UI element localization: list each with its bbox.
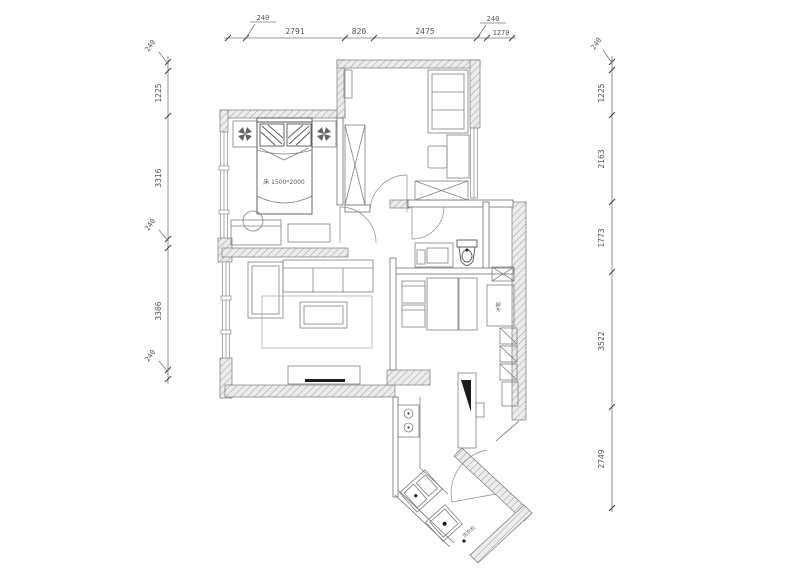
dim-label: 3316 — [154, 168, 163, 187]
partition-hall-stub — [345, 205, 370, 212]
wall-study-right — [470, 60, 480, 128]
background — [0, 0, 800, 575]
dim-label: 1773 — [597, 228, 606, 247]
dim-label: 2163 — [597, 149, 606, 168]
partition-kitchen-left — [393, 397, 398, 497]
wall-bedroom-bottom — [222, 248, 348, 257]
partition-dining — [390, 258, 396, 370]
dim-label: 1225 — [597, 83, 606, 102]
floor-plan-page: 240 2791 820 2475 240 1270 240 1225 3316… — [0, 0, 800, 575]
partition-bath-shaft — [483, 202, 489, 268]
dim-label: 1225 — [154, 83, 163, 102]
wall-kitchen-top — [387, 370, 430, 385]
dim-label: 1270 — [493, 29, 510, 37]
dim-label: 820 — [352, 27, 367, 36]
window-bedroom-left — [219, 132, 229, 238]
bed-size-label: 床 1500*2000 — [263, 178, 305, 186]
dim-label: 2475 — [415, 27, 434, 36]
wall-living-bottom — [225, 385, 395, 397]
wall-bedroom-top — [220, 110, 345, 118]
fridge-label: 冰箱 — [495, 302, 502, 312]
wall-study-top — [337, 60, 480, 68]
dim-label: 3522 — [597, 331, 606, 350]
partition-bedroom-hall — [337, 118, 343, 205]
dim-label: 2791 — [285, 27, 304, 36]
dim-label: 2749 — [597, 449, 606, 468]
tv — [305, 379, 345, 382]
floor-plan-svg: 240 2791 820 2475 240 1270 240 1225 3316… — [0, 0, 800, 575]
partition-bath-top — [408, 200, 513, 207]
window-study-right — [471, 128, 478, 198]
wall-left-upper — [220, 110, 228, 132]
dim-label: 240 — [487, 15, 500, 23]
window-living-left — [221, 262, 231, 358]
dim-label: 3306 — [154, 301, 163, 320]
dim-label: 240 — [257, 14, 270, 22]
drain-dot — [462, 539, 465, 542]
